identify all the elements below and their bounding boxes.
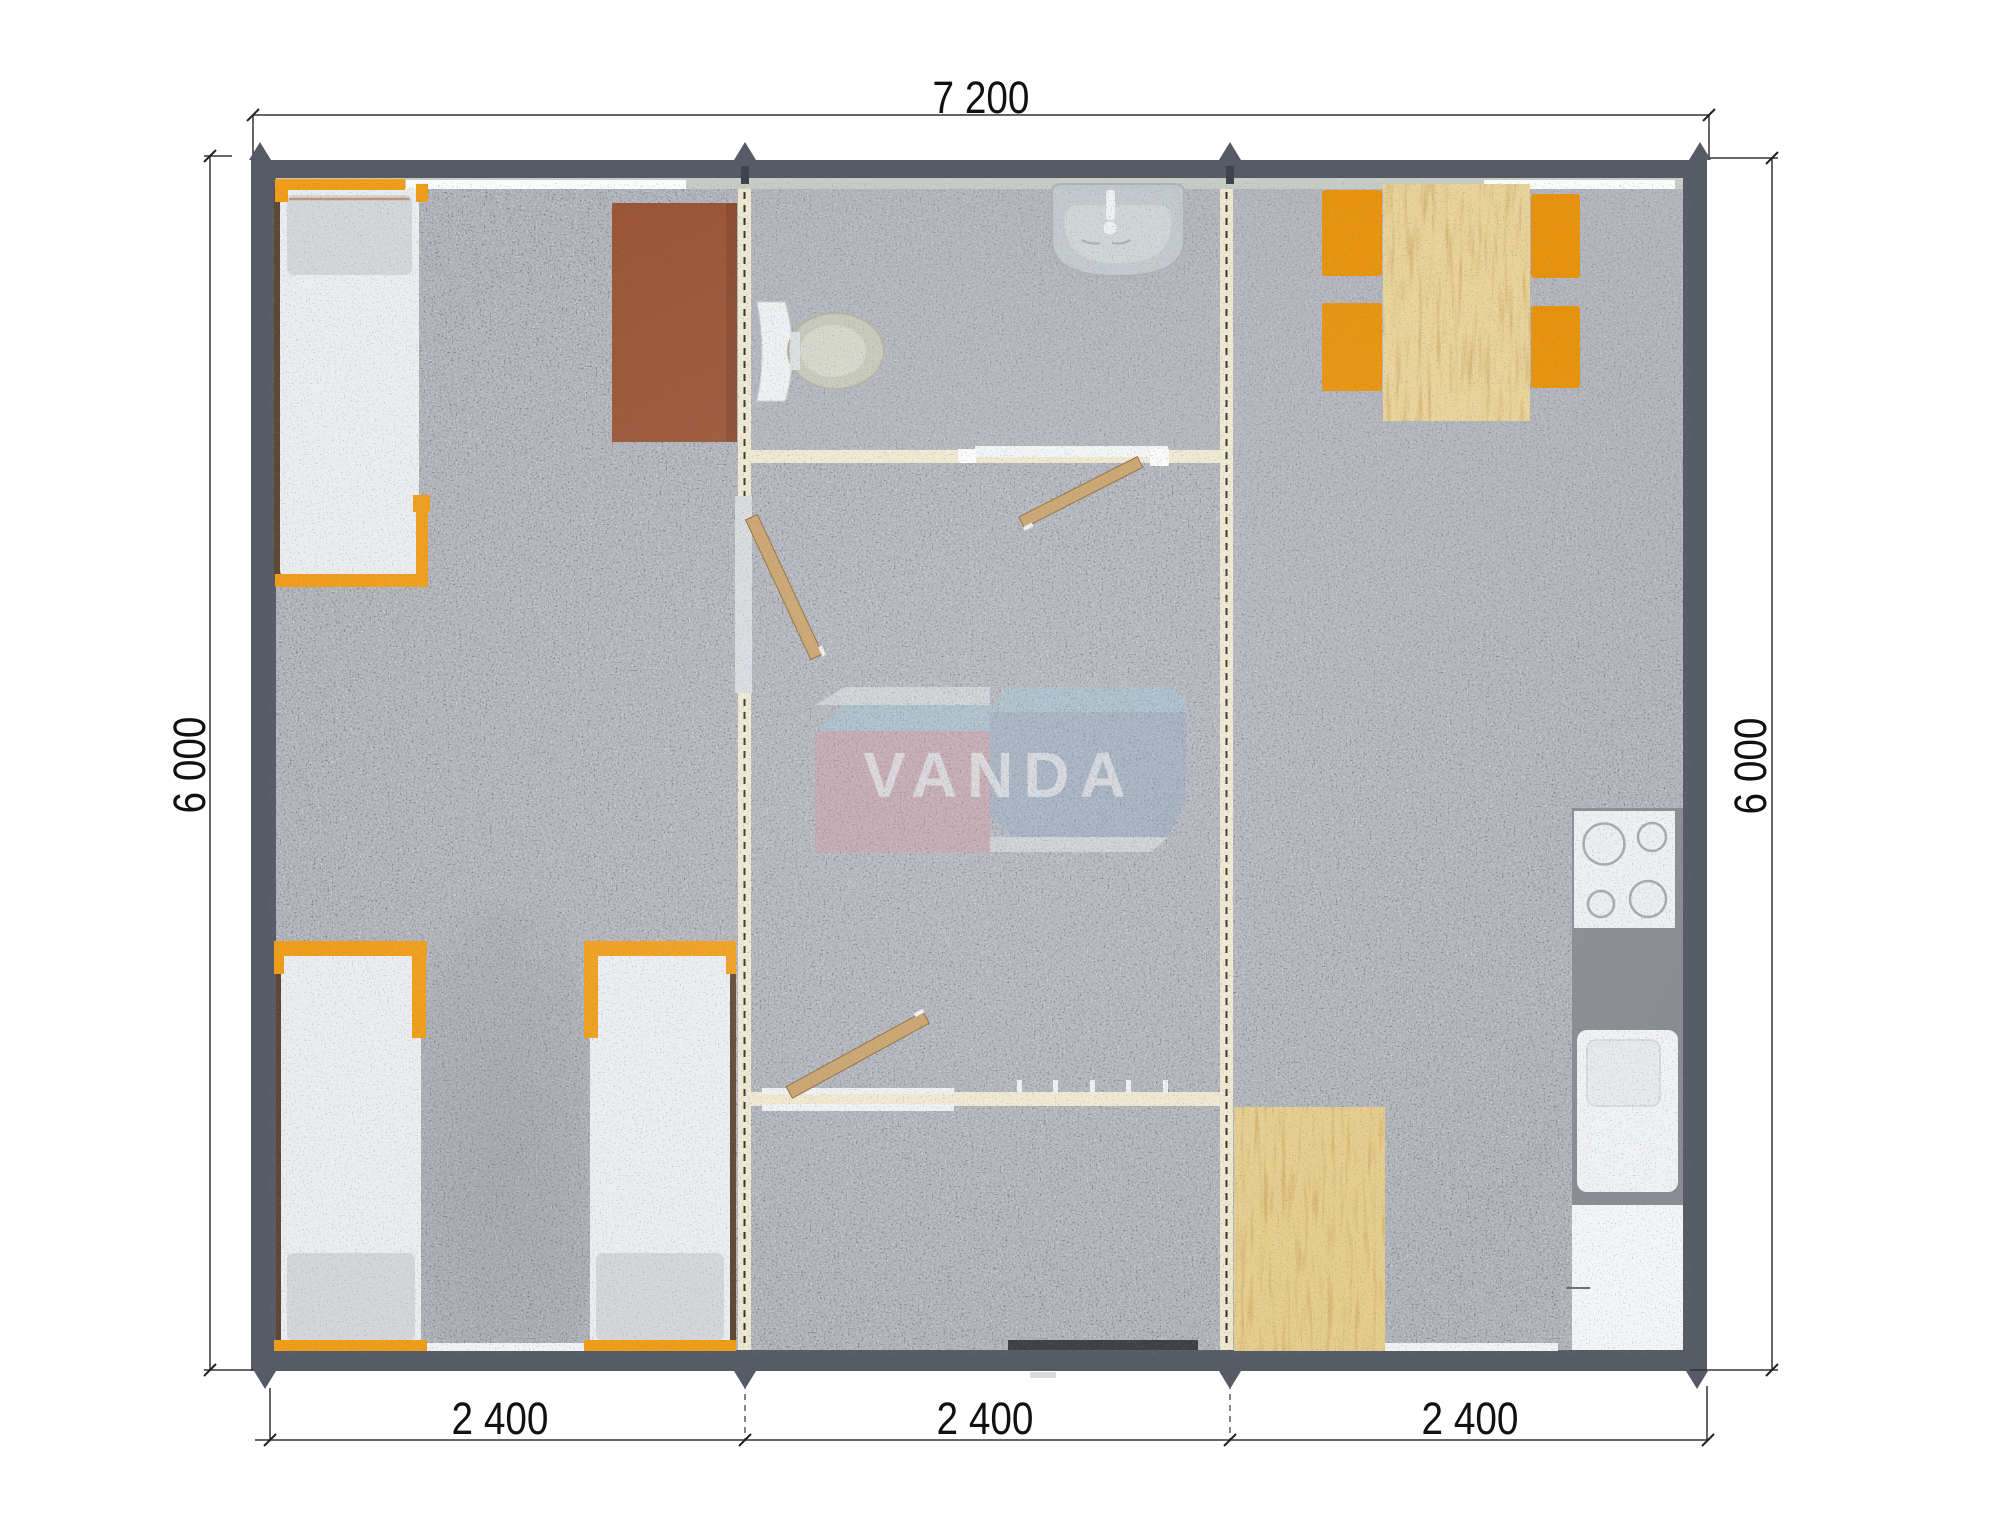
svg-text:2 400: 2 400	[452, 1393, 549, 1444]
svg-text:6 000: 6 000	[164, 717, 215, 814]
svg-text:6 000: 6 000	[1725, 718, 1776, 815]
svg-text:2 400: 2 400	[937, 1393, 1034, 1444]
svg-text:2 400: 2 400	[1422, 1393, 1519, 1444]
svg-text:7 200: 7 200	[933, 72, 1030, 123]
